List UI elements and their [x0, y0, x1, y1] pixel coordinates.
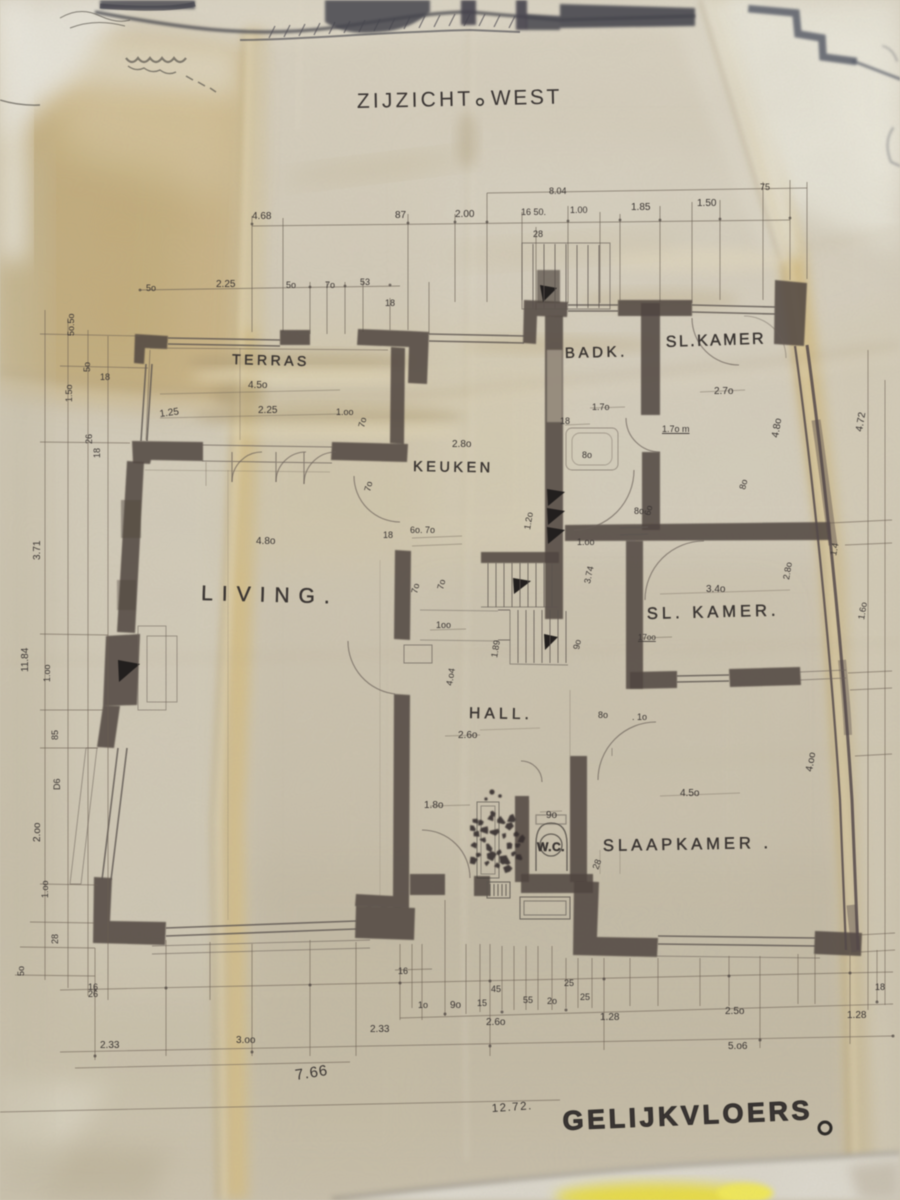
svg-text:4.5o: 4.5o	[248, 380, 268, 391]
svg-text:18: 18	[560, 416, 570, 426]
svg-text:1.28: 1.28	[600, 1012, 620, 1023]
svg-text:2.33: 2.33	[100, 1040, 120, 1051]
svg-text:1.50: 1.50	[697, 198, 717, 209]
svg-text:7o: 7o	[362, 480, 374, 492]
svg-text:2.8o: 2.8o	[781, 561, 794, 580]
svg-text:11.84: 11.84	[20, 647, 31, 672]
svg-text:LIVING.: LIVING.	[201, 582, 339, 609]
svg-text:28: 28	[533, 229, 543, 239]
svg-text:18: 18	[100, 372, 110, 382]
svg-text:5o.5o: 5o.5o	[66, 313, 76, 336]
svg-text:7o: 7o	[325, 280, 335, 290]
svg-text:4.o4: 4.o4	[444, 667, 457, 686]
svg-text:4.68: 4.68	[252, 211, 272, 222]
svg-text:5o: 5o	[16, 966, 26, 976]
svg-text:16: 16	[88, 982, 98, 992]
svg-text:W.C.: W.C.	[537, 840, 565, 854]
svg-text:5o: 5o	[286, 280, 296, 290]
svg-text:SLAAPKAMER .: SLAAPKAMER .	[603, 834, 772, 855]
svg-text:28: 28	[590, 858, 603, 871]
svg-text:8o: 8o	[737, 478, 749, 490]
svg-text:1.2o: 1.2o	[522, 511, 535, 530]
svg-text:4.5o: 4.5o	[680, 788, 700, 799]
svg-text:SL. KAMER.: SL. KAMER.	[647, 602, 780, 623]
svg-text:1.4: 1.4	[828, 542, 840, 556]
svg-text:7o: 7o	[435, 578, 447, 590]
svg-text:3.4o: 3.4o	[706, 584, 726, 595]
svg-text:2.7o: 2.7o	[714, 386, 734, 397]
svg-text:18: 18	[383, 530, 393, 540]
svg-text:SL.KAMER: SL.KAMER	[666, 331, 767, 351]
svg-text:3.71: 3.71	[32, 540, 43, 560]
svg-text:HALL.: HALL.	[469, 705, 533, 723]
svg-text:18: 18	[385, 298, 395, 308]
svg-text:2.5o: 2.5o	[725, 1006, 745, 1017]
svg-text:1.8o: 1.8o	[424, 800, 444, 811]
svg-text:4.oo: 4.oo	[804, 751, 818, 773]
svg-text:GELIJKVLOERS: GELIJKVLOERS	[562, 1095, 814, 1136]
svg-text:26: 26	[84, 434, 94, 444]
svg-text:45: 45	[491, 984, 501, 994]
svg-text:1.85: 1.85	[631, 202, 651, 213]
svg-text:2.33: 2.33	[370, 1024, 390, 1035]
svg-text:1.oo: 1.oo	[42, 664, 52, 682]
svg-text:28: 28	[50, 934, 60, 944]
svg-text:1.oo: 1.oo	[336, 407, 354, 417]
svg-text:4.72: 4.72	[854, 411, 868, 433]
svg-text:25: 25	[580, 992, 590, 1002]
svg-text:8.04: 8.04	[549, 186, 567, 196]
svg-text:8o: 8o	[598, 710, 608, 720]
svg-text:18: 18	[92, 448, 102, 458]
svg-text:2.6o: 2.6o	[486, 1017, 506, 1028]
svg-text:1o: 1o	[418, 1000, 428, 1010]
svg-text:9o: 9o	[571, 639, 583, 651]
svg-text:7.66: 7.66	[294, 1062, 329, 1084]
svg-text:1.6o: 1.6o	[856, 601, 869, 620]
svg-text:ZIJZICHT: ZIJZICHT	[357, 88, 474, 113]
svg-text:3.74: 3.74	[582, 565, 595, 584]
svg-text:75: 75	[760, 182, 770, 192]
svg-text:D6: D6	[52, 778, 62, 790]
svg-text:TERRAS: TERRAS	[232, 351, 310, 369]
svg-text:1.7o: 1.7o	[592, 402, 610, 412]
svg-text:1.5o: 1.5o	[64, 384, 74, 402]
svg-text:1.7o m: 1.7o m	[662, 424, 690, 434]
svg-text:8o: 8o	[582, 450, 592, 460]
svg-text:53: 53	[360, 277, 370, 287]
svg-text:55: 55	[523, 995, 533, 1005]
svg-text:12.72.: 12.72.	[491, 1100, 533, 1115]
svg-text:3.oo: 3.oo	[236, 1035, 256, 1046]
svg-text:1.89: 1.89	[489, 639, 502, 658]
svg-text:2.oo: 2.oo	[32, 822, 43, 842]
svg-text:2.25: 2.25	[258, 405, 278, 416]
svg-text:7o: 7o	[409, 582, 421, 594]
svg-text:9o: 9o	[450, 1000, 462, 1011]
svg-text:KEUKEN: KEUKEN	[413, 459, 494, 476]
svg-text:4.8o: 4.8o	[256, 536, 276, 547]
svg-text:15: 15	[477, 998, 487, 1008]
svg-text:4.8o: 4.8o	[770, 417, 784, 439]
svg-text:16: 16	[398, 966, 408, 976]
svg-text:1.00: 1.00	[570, 205, 588, 215]
svg-text:BADK.: BADK.	[565, 343, 628, 362]
svg-text:1.oo: 1.oo	[577, 537, 595, 547]
svg-text:1oo: 1oo	[436, 620, 451, 630]
svg-text:9o: 9o	[546, 810, 558, 821]
svg-text:1.28: 1.28	[847, 1010, 867, 1021]
svg-text:17oo: 17oo	[638, 633, 656, 642]
svg-text:2.25: 2.25	[216, 279, 236, 290]
svg-text:5.o6: 5.o6	[728, 1041, 748, 1052]
svg-text:87: 87	[395, 210, 407, 221]
svg-text:2.00: 2.00	[455, 209, 475, 220]
svg-text:1.oo: 1.oo	[40, 880, 50, 898]
svg-text:25: 25	[564, 978, 574, 988]
svg-text:5o: 5o	[146, 283, 156, 293]
svg-text:85: 85	[50, 730, 60, 740]
svg-text:7o: 7o	[356, 416, 368, 428]
svg-text:6o. 7o: 6o. 7o	[410, 525, 435, 535]
svg-text:WEST: WEST	[491, 86, 563, 110]
svg-text:5o: 5o	[82, 362, 92, 372]
svg-text:16 50.: 16 50.	[521, 207, 546, 217]
svg-text:2.6o: 2.6o	[458, 730, 478, 741]
svg-text:2.8o: 2.8o	[452, 439, 472, 450]
svg-text:. 1o: . 1o	[632, 712, 647, 722]
svg-text:2o: 2o	[547, 996, 557, 1006]
svg-text:18: 18	[875, 982, 885, 992]
